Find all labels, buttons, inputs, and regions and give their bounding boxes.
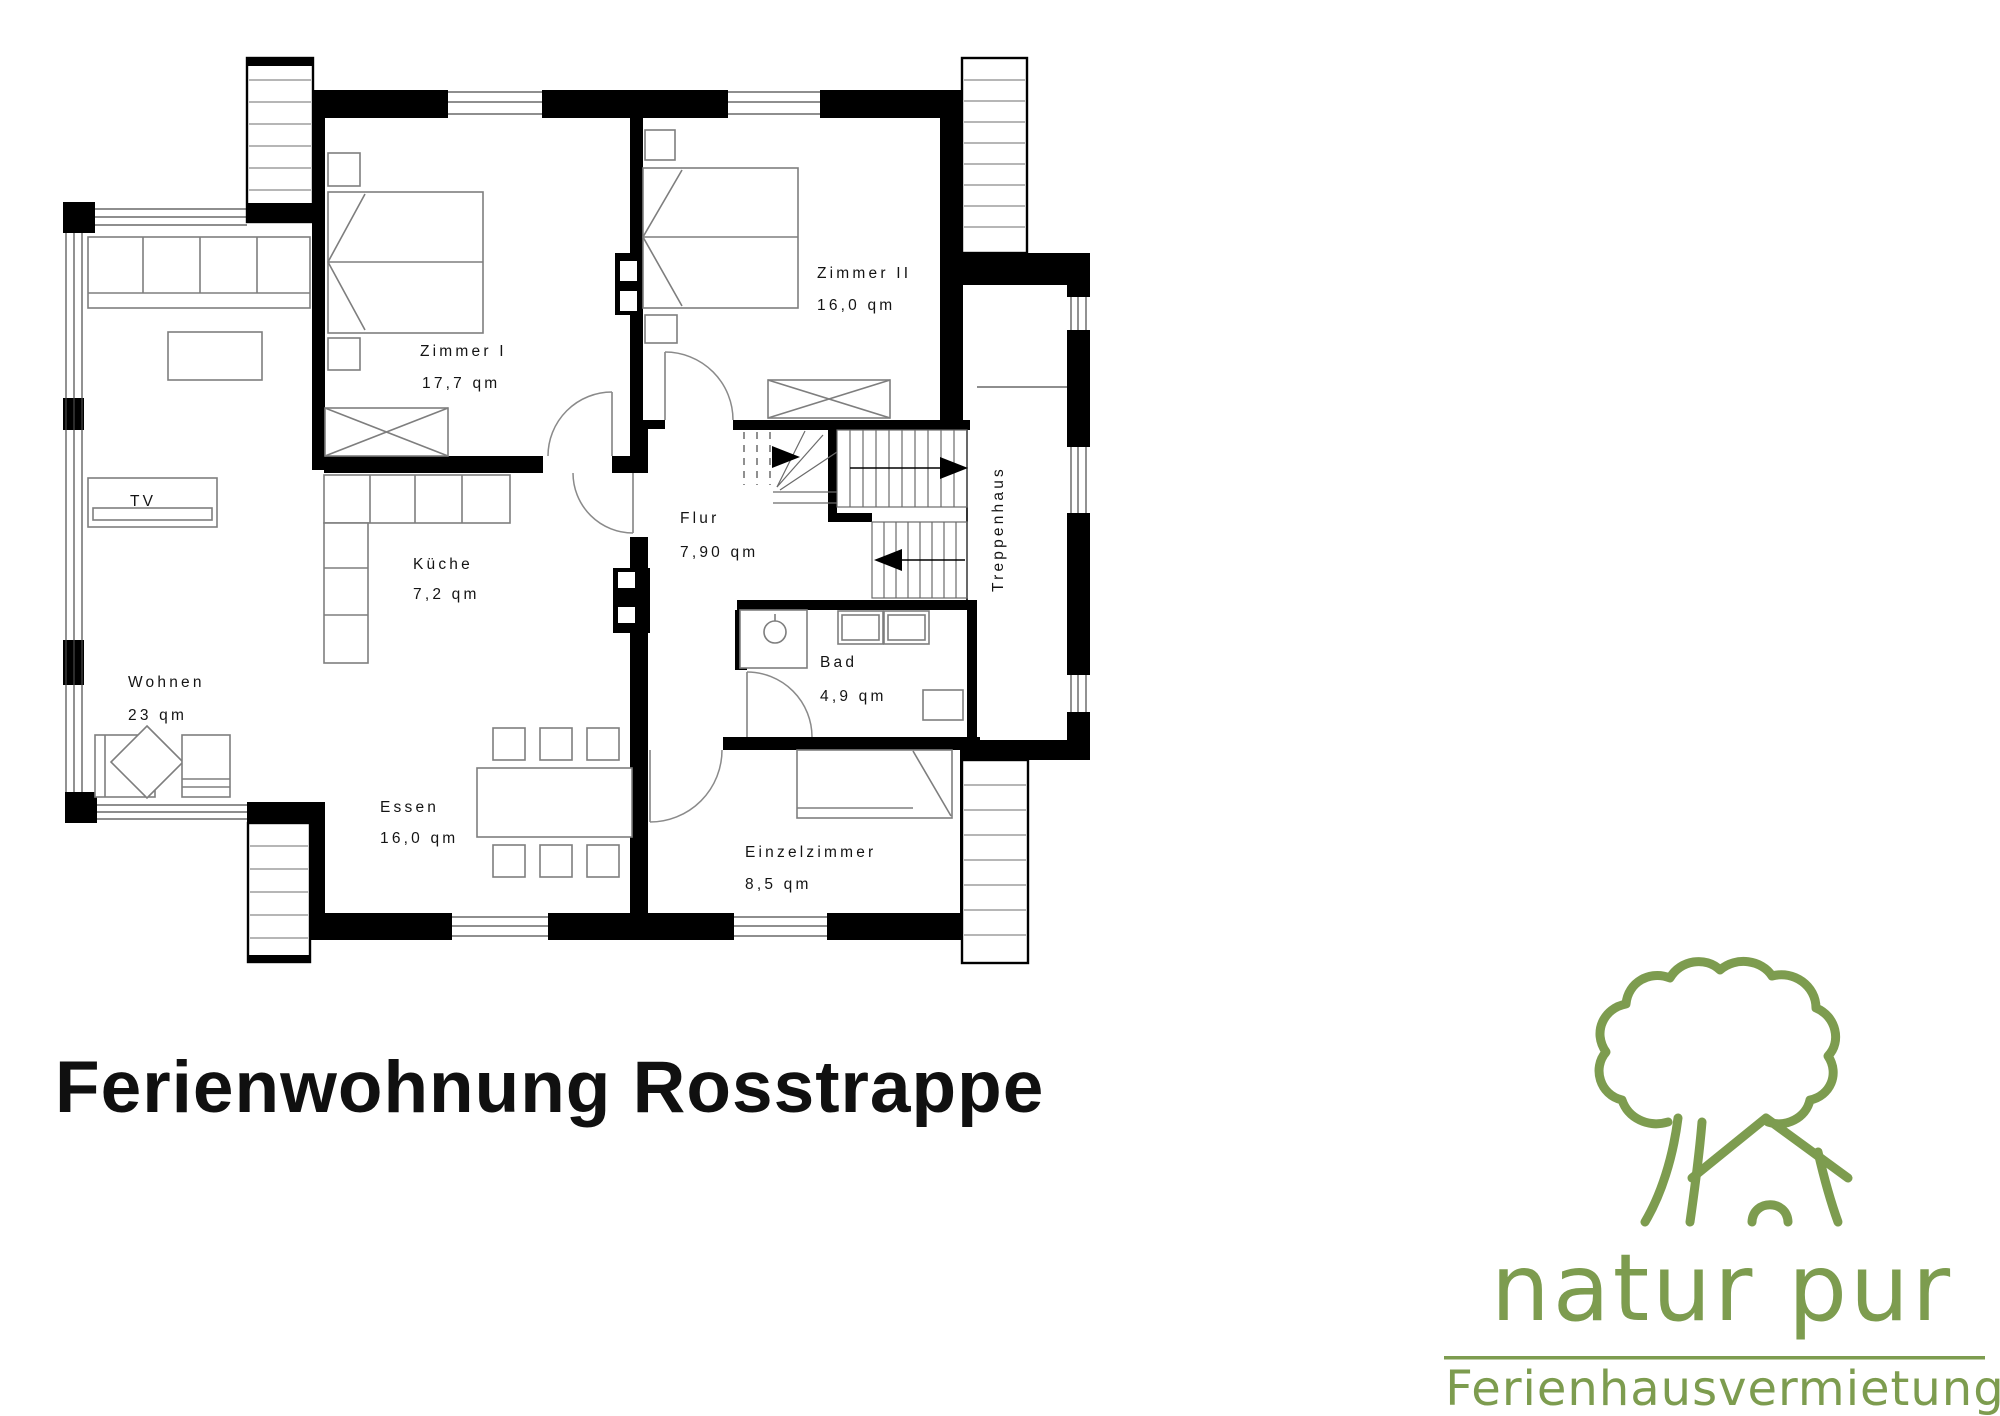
room-area-flur: 7,90 qm — [680, 544, 758, 561]
floorplan: Zimmer I 17,7 qm Zimmer II 16,0 qm Flur … — [63, 58, 1090, 963]
bath-cabinet-icon — [923, 690, 963, 720]
tree-house-icon — [1599, 961, 1848, 1222]
exterior-stair-top-left — [247, 58, 313, 222]
room-area-kueche: 7,2 qm — [413, 586, 480, 603]
logo-subtitle-text: Ferienhausvermietung — [1445, 1361, 2000, 1416]
door-bad — [747, 672, 812, 737]
coffee-table-icon — [168, 332, 262, 380]
double-bed-icon-zimmer1 — [328, 192, 483, 333]
room-label-einzelzimmer: Einzelzimmer — [745, 844, 876, 861]
dining-table-icon — [477, 728, 632, 877]
door-kueche — [573, 473, 633, 533]
wardrobe-icon-zimmer1 — [325, 408, 448, 456]
room-label-flur: Flur — [680, 510, 720, 527]
washbasin-icon — [838, 611, 929, 644]
sofa-icon — [88, 237, 310, 308]
room-area-zimmer2: 16,0 qm — [817, 297, 895, 314]
window-top-2 — [728, 92, 820, 114]
nightstand-icon — [645, 130, 675, 160]
exterior-stair-top-right — [962, 58, 1027, 253]
exterior-stair-bottom-left — [248, 823, 310, 962]
room-area-zimmer1: 17,7 qm — [422, 375, 500, 392]
room-label-treppenhaus: Treppenhaus — [990, 466, 1007, 592]
room-area-essen: 16,0 qm — [380, 830, 458, 847]
room-label-zimmer1: Zimmer I — [420, 343, 507, 360]
recliner-icon — [182, 735, 230, 797]
shower-icon — [740, 610, 807, 668]
tv-label: TV — [130, 493, 156, 510]
nightstand-icon — [328, 338, 360, 370]
logo: natur pur Ferienhausvermietung — [1444, 961, 2000, 1416]
nightstand-icon — [328, 153, 360, 186]
window-top-1 — [448, 92, 542, 114]
room-area-bad: 4,9 qm — [820, 688, 887, 705]
single-bed-icon — [797, 750, 952, 818]
door-einzelzimmer — [650, 750, 722, 822]
room-label-zimmer2: Zimmer II — [817, 265, 911, 282]
room-label-bad: Bad — [820, 654, 857, 671]
logo-divider — [1444, 1356, 1985, 1360]
exterior-stair-bottom-right — [962, 760, 1028, 963]
window-bottom-1 — [452, 917, 548, 936]
door-zimmer2 — [665, 352, 733, 420]
logo-brand-text: natur pur — [1491, 1234, 1953, 1342]
room-label-kueche: Küche — [413, 556, 473, 573]
room-area-wohnen: 23 qm — [128, 707, 187, 724]
room-label-essen: Essen — [380, 799, 439, 816]
double-bed-icon-zimmer2 — [643, 168, 798, 308]
room-area-einzelzimmer: 8,5 qm — [745, 876, 812, 893]
page-title: Ferienwohnung Rosstrappe — [55, 1047, 1044, 1128]
stair-arrow-up — [850, 457, 968, 479]
door-zimmer1 — [548, 392, 612, 456]
nightstand-icon — [645, 315, 677, 343]
window-bottom-2 — [734, 917, 827, 936]
floorplan-page: Zimmer I 17,7 qm Zimmer II 16,0 qm Flur … — [0, 0, 2000, 1416]
wardrobe-icon-zimmer2 — [768, 380, 890, 418]
window-right-3 — [1071, 675, 1086, 712]
window-right-2 — [1071, 447, 1086, 513]
room-label-wohnen: Wohnen — [128, 674, 205, 691]
window-right-1 — [1071, 297, 1086, 330]
